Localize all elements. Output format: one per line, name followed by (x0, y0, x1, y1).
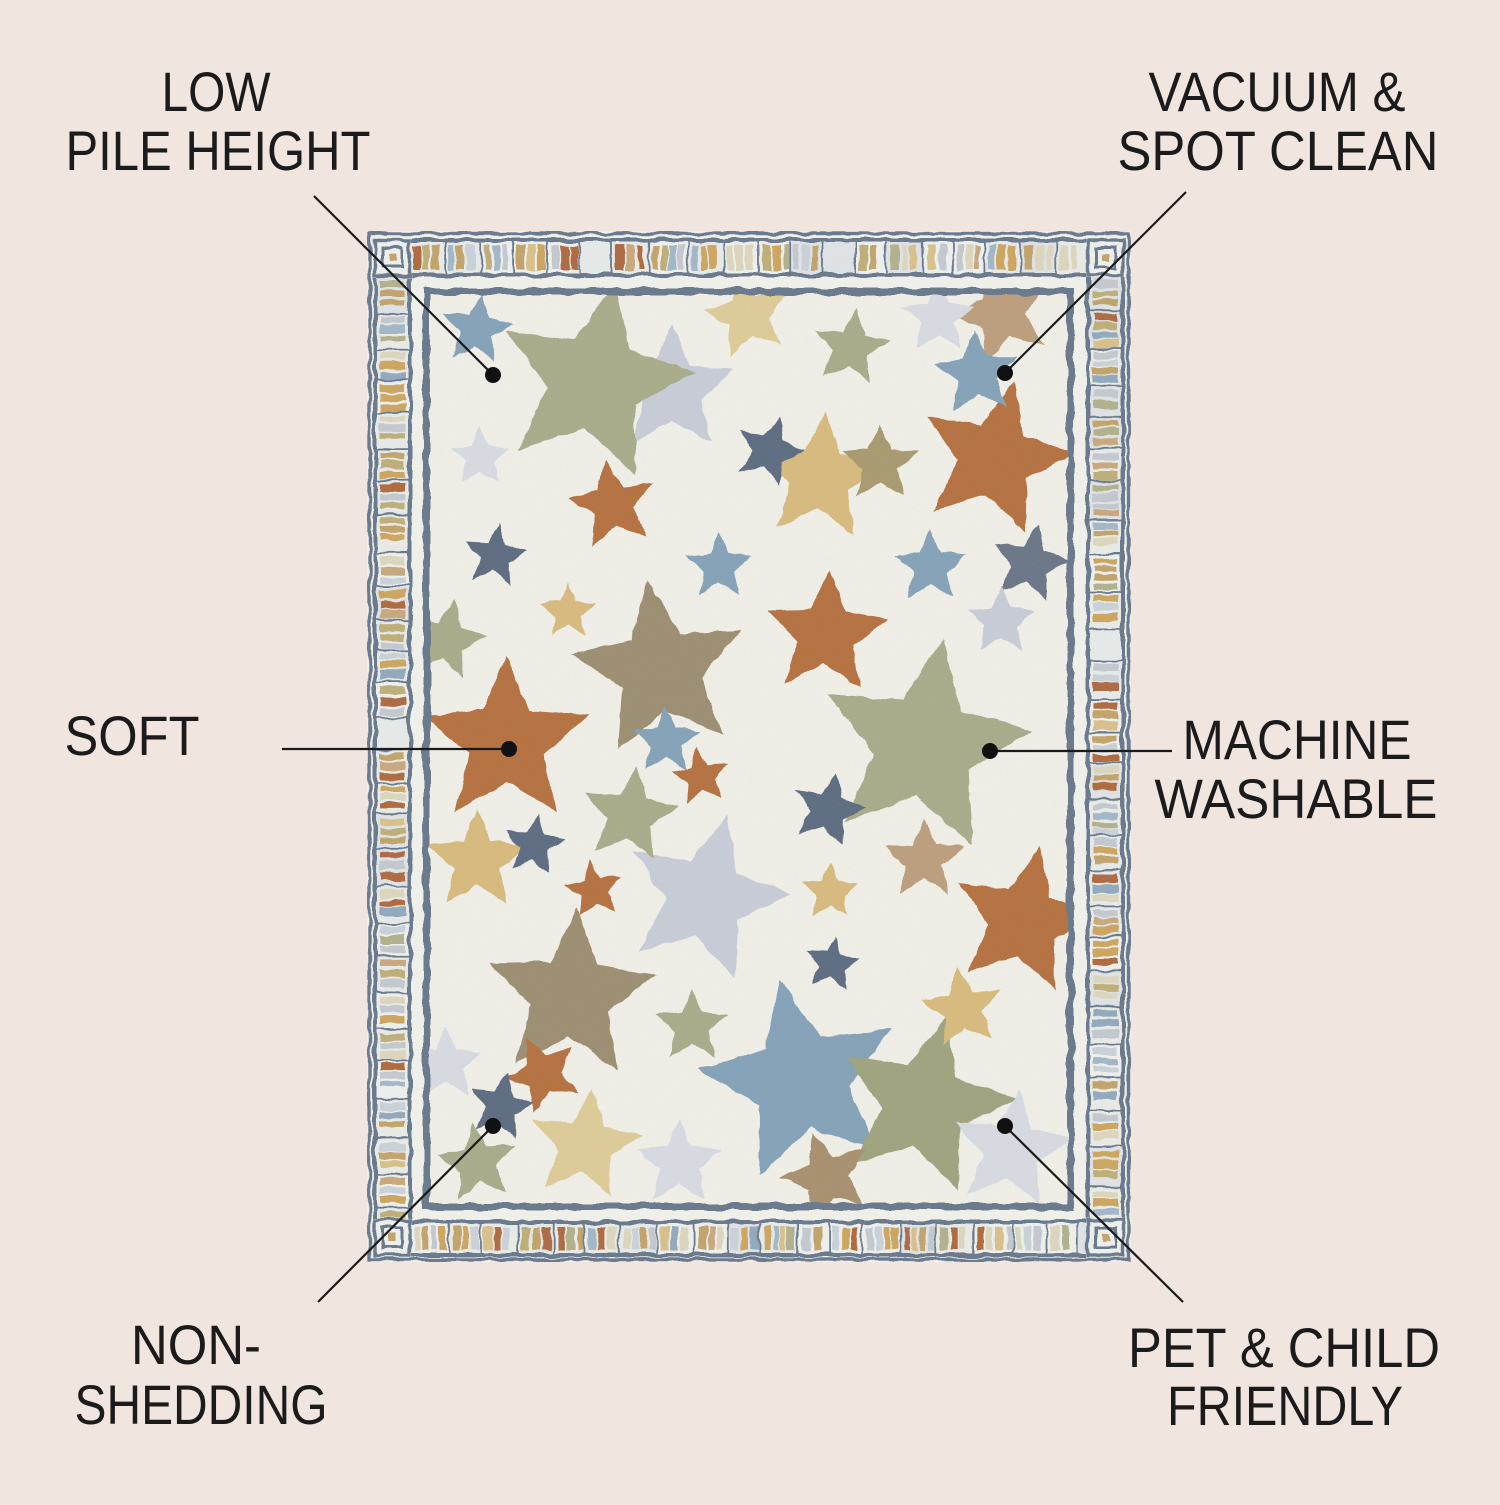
svg-text:FRIENDLY: FRIENDLY (1167, 1374, 1403, 1437)
svg-text:LOW: LOW (162, 60, 271, 123)
svg-text:MACHINE: MACHINE (1183, 708, 1412, 771)
svg-text:SPOT CLEAN: SPOT CLEAN (1118, 119, 1439, 182)
svg-text:VACUUM &: VACUUM & (1149, 60, 1406, 123)
svg-text:PET & CHILD: PET & CHILD (1128, 1316, 1440, 1379)
svg-text:WASHABLE: WASHABLE (1155, 767, 1438, 830)
svg-text:SHEDDING: SHEDDING (75, 1373, 328, 1436)
svg-text:PILE HEIGHT: PILE HEIGHT (66, 119, 371, 182)
svg-text:SOFT: SOFT (65, 704, 200, 767)
svg-text:NON-: NON- (131, 1313, 261, 1376)
